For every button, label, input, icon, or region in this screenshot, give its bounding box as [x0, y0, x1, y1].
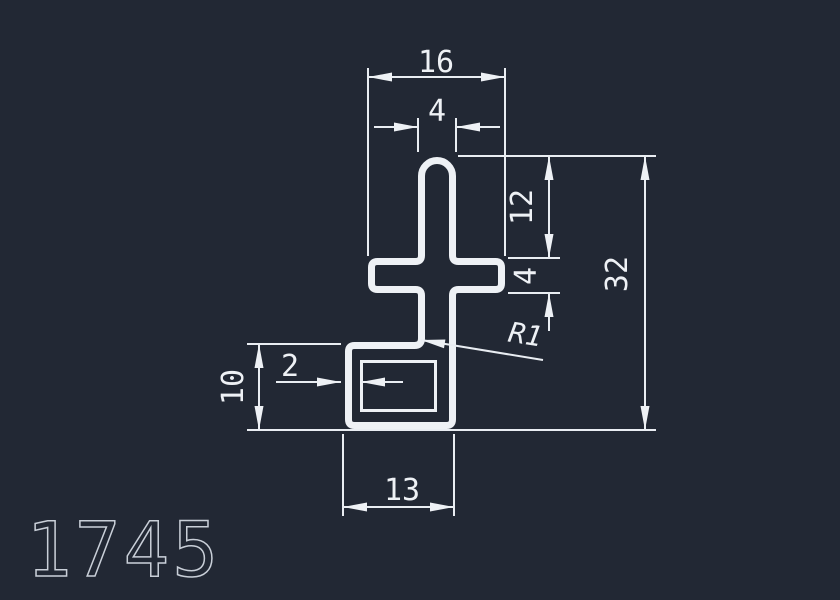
arrowhead-up-icon: [545, 293, 554, 317]
dimension-upper-stem-height: 12: [458, 156, 656, 258]
dimension-overall-height: 32: [600, 156, 650, 430]
dimension-value: 4: [509, 267, 544, 285]
arrowhead-right-icon: [430, 503, 454, 512]
radius-callout: R1: [421, 316, 545, 360]
dimension-stem-width: 4: [374, 94, 500, 152]
arrowhead-right-icon: [317, 378, 341, 387]
arrowhead-left-icon: [361, 378, 385, 387]
arrowhead-right-icon: [481, 73, 505, 82]
arrowhead-up-icon: [545, 156, 554, 180]
profile-cross-section: [349, 161, 502, 426]
profile-inner-hole: [362, 362, 436, 411]
arrowhead-left-icon: [456, 123, 480, 132]
dimension-value: 2: [281, 349, 299, 384]
arrowhead-left-icon: [343, 503, 367, 512]
dimension-base-width: 13: [343, 434, 454, 516]
dimension-crossbar-width: 16: [368, 45, 505, 256]
dimension-value: 4: [428, 94, 446, 129]
dimension-value: 12: [505, 189, 540, 225]
dimension-wall-thickness: 2: [276, 349, 403, 387]
dimension-value: 32: [600, 256, 635, 292]
part-number-label: 1745: [26, 505, 221, 594]
dimension-value: 13: [384, 473, 420, 508]
arrowhead-left-icon: [368, 73, 392, 82]
leader-arrowhead-icon: [421, 340, 445, 349]
dimension-value: 10: [216, 369, 251, 405]
arrowhead-down-icon: [545, 234, 554, 258]
dimension-value: 16: [418, 45, 454, 80]
arrowhead-down-icon: [255, 406, 264, 430]
profile-outline: [349, 161, 502, 426]
arrowhead-right-icon: [394, 123, 418, 132]
arrowhead-up-icon: [255, 344, 264, 368]
arrowhead-up-icon: [641, 156, 650, 180]
cad-drawing: 16 4 12 4: [0, 0, 840, 600]
cad-viewport: 16 4 12 4: [0, 0, 840, 600]
radius-value: R1: [506, 316, 544, 354]
arrowhead-down-icon: [641, 406, 650, 430]
dimension-base-height: 10: [216, 344, 341, 430]
